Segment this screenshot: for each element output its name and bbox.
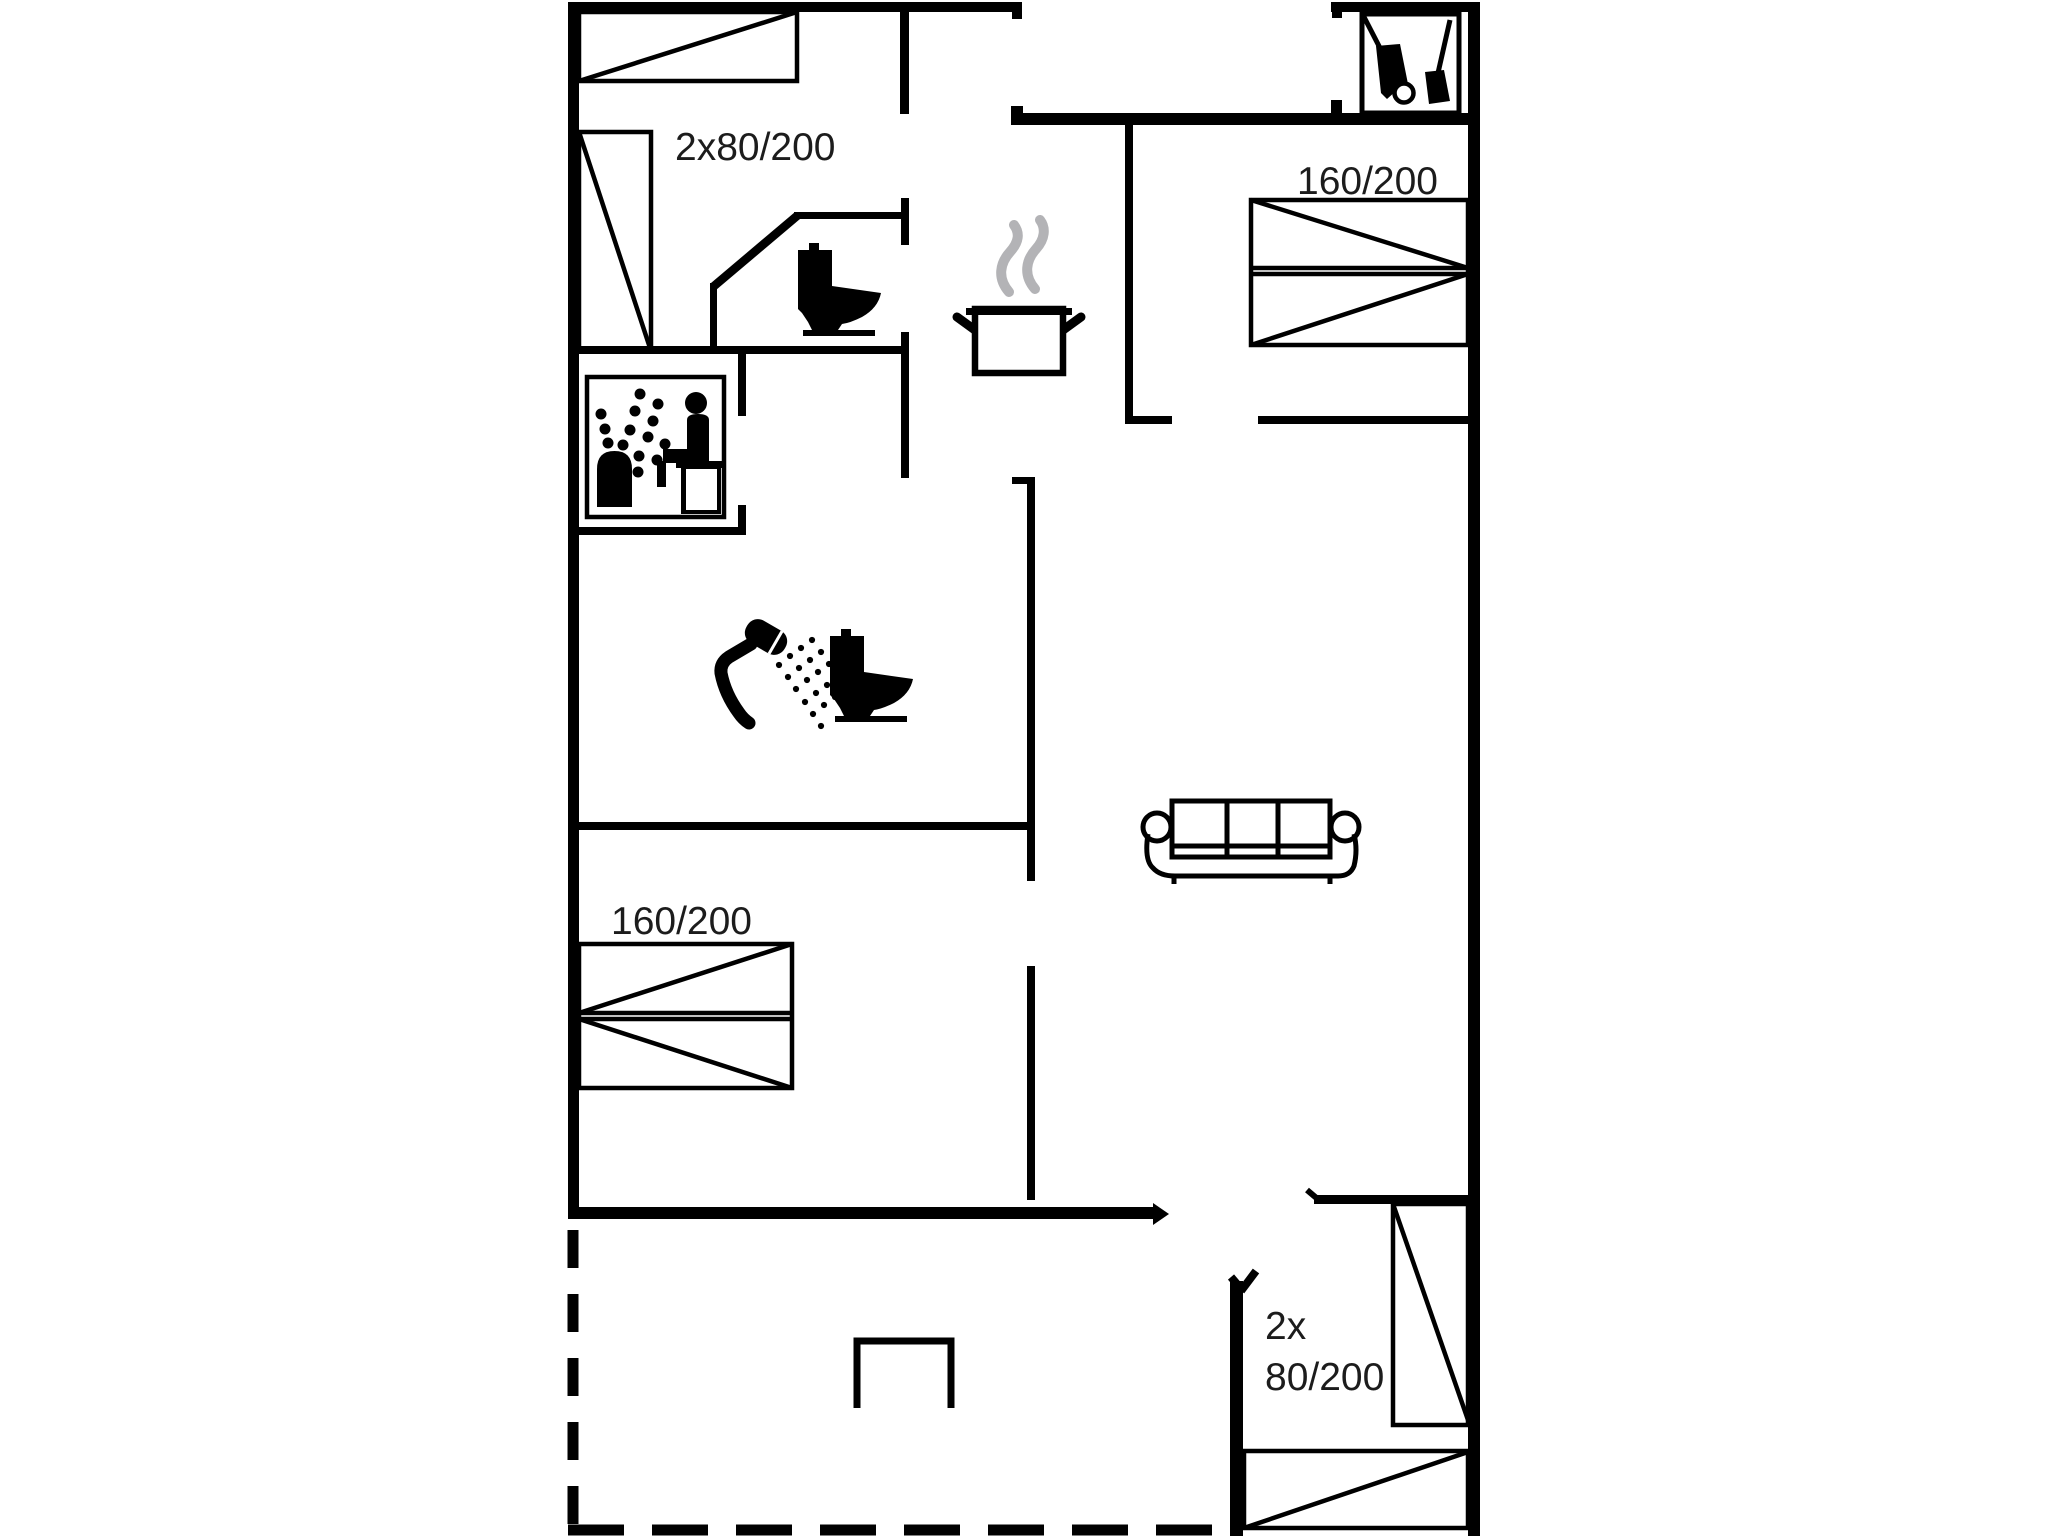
svg-text:160/200: 160/200	[1297, 160, 1438, 203]
svg-text:2x: 2x	[1265, 1305, 1307, 1348]
svg-text:2x80/200: 2x80/200	[675, 126, 835, 169]
svg-text:80/200: 80/200	[1265, 1356, 1384, 1399]
svg-text:160/200: 160/200	[611, 900, 752, 943]
